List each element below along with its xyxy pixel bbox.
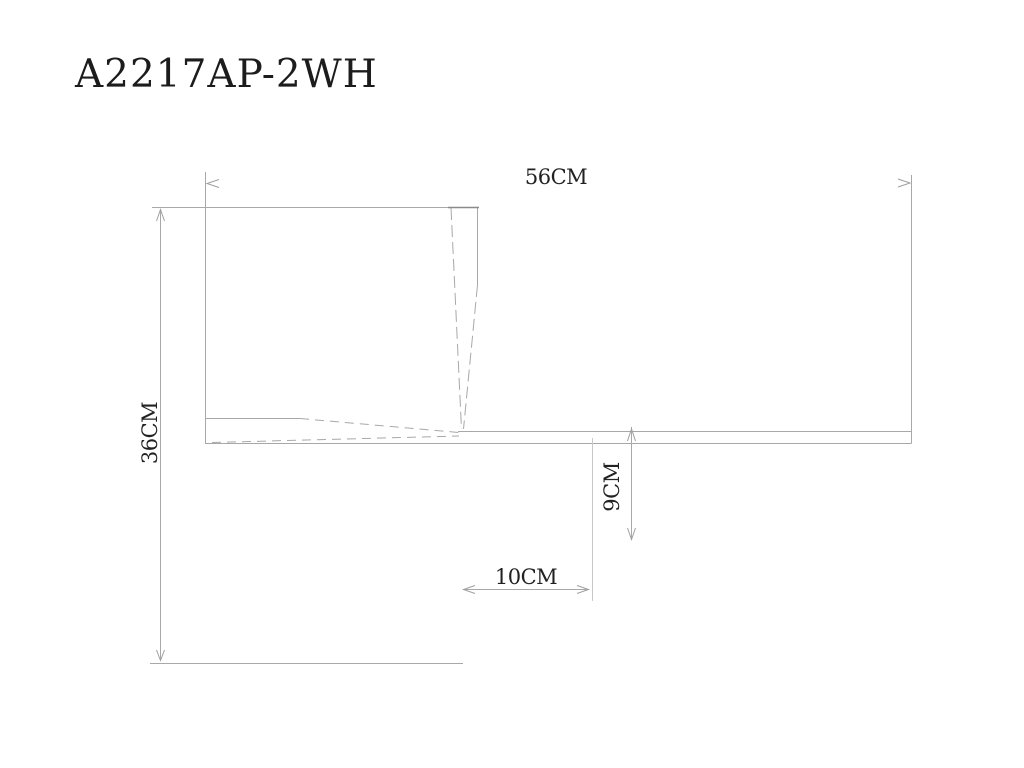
arrow-56cm-right-icon xyxy=(898,179,910,187)
arrow-56cm-left-icon xyxy=(207,180,219,188)
product-code-title: A2217AP-2WH xyxy=(75,52,378,97)
dimension-labels: 56CM 36CM 9CM 10CM xyxy=(138,165,624,589)
drop-dimension-label: 9CM xyxy=(600,462,624,511)
dimension-drawing: 56CM 36CM 9CM 10CM xyxy=(0,0,1024,768)
vertical-cone-right-taper xyxy=(464,285,478,429)
vertical-cone-left-edge xyxy=(451,208,462,429)
offset-dimension-label: 10CM xyxy=(495,565,557,589)
horizontal-cone-top-taper xyxy=(300,419,459,433)
dimension-drawing-page: A2217AP-2WH xyxy=(0,0,1024,768)
horizontal-cone-bottom-taper xyxy=(212,436,459,443)
width-dimension-label: 56CM xyxy=(525,165,587,189)
drawing-lines xyxy=(150,172,912,664)
height-dimension-label: 36CM xyxy=(138,402,162,464)
